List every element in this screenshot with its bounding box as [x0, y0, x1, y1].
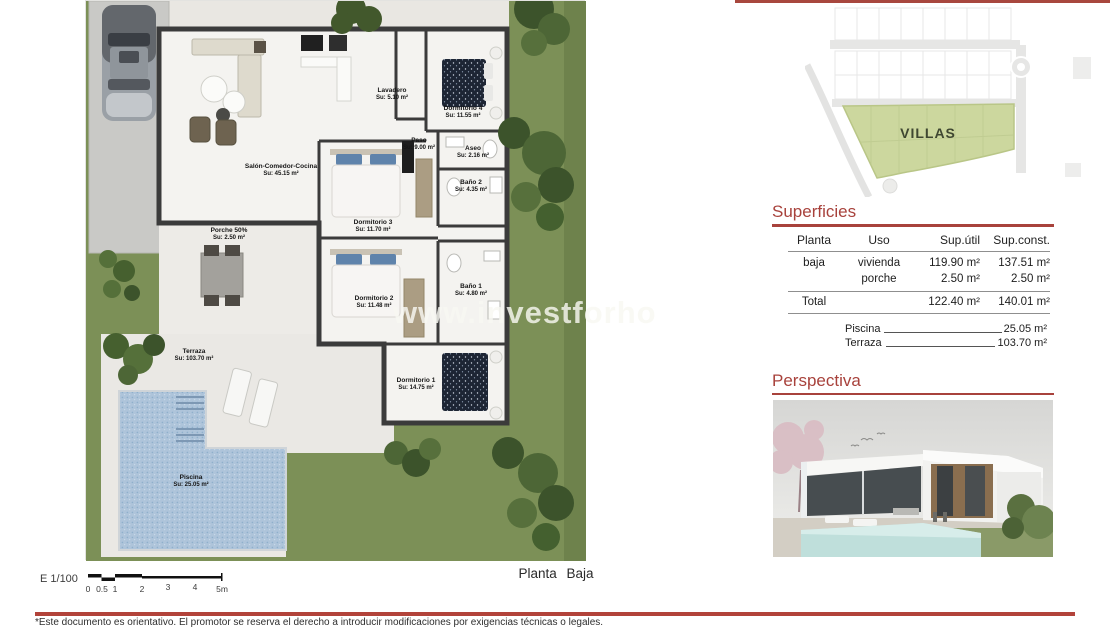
room-label-paso: Paso Su: 9.00 m²: [389, 137, 449, 153]
header-uso: Uso: [840, 233, 918, 247]
floor-plan: Salón-Comedor-Cocina Su: 45.15 m² Lavade…: [85, 0, 585, 560]
room-label-aseo: Aseo Su: 2.16 m²: [443, 145, 503, 161]
superficies-title: Superficies: [772, 202, 856, 222]
bottom-red-rule: [35, 612, 1075, 616]
footer-disclaimer: *Este documento es orientativo. El promo…: [35, 617, 603, 628]
svg-text:5m: 5m: [216, 584, 228, 594]
svg-text:3: 3: [166, 582, 171, 592]
table-header-row: Planta Uso Sup.útil Sup.const.: [788, 231, 1050, 252]
svg-text:4: 4: [193, 582, 198, 592]
perspectiva-rule: [772, 393, 1054, 395]
svg-text:1: 1: [113, 584, 118, 594]
plan-caption: Planta Baja: [500, 566, 612, 581]
header-planta: Planta: [788, 233, 840, 247]
room-label-lavadero: Lavadero Su: 5.10 m²: [362, 87, 422, 103]
header-sup-util: Sup.útil: [918, 233, 980, 247]
table-row: baja vivienda 119.90 m² 137.51 m²: [788, 252, 1050, 271]
extra-piscina: Piscina 25.05 m²: [845, 323, 1047, 335]
scale-bar: E 1/100 0 0.5 1 2 3 4 5m: [40, 568, 240, 594]
room-label-porche: Porche 50% Su: 2.50 m²: [189, 227, 269, 243]
table-total-row: Total 122.40 m² 140.01 m²: [788, 291, 1050, 314]
brochure-page: { "colors": {"accent_red": "#a8423c", "l…: [0, 0, 1110, 626]
svg-text:E 1/100: E 1/100: [40, 573, 78, 585]
room-label-dormitorio-4: Dormitorio 4 Su: 11.55 m²: [423, 105, 503, 121]
room-label-piscina: Piscina Su: 25.05 m²: [151, 474, 231, 490]
superficies-rule: [772, 224, 1054, 227]
svg-text:2: 2: [140, 584, 145, 594]
svg-text:0.5: 0.5: [96, 584, 108, 594]
villas-label: VILLAS: [900, 125, 956, 141]
superficies-table: Planta Uso Sup.útil Sup.const. baja vivi…: [788, 231, 1050, 314]
top-red-rule: [735, 0, 1110, 3]
villas-parcel: [843, 104, 1014, 178]
site-plan: VILLAS: [805, 5, 1105, 197]
room-label-dormitorio-1: Dormitorio 1 Su: 14.75 m²: [381, 377, 451, 393]
room-label-terraza: Terraza Su: 103.70 m²: [154, 348, 234, 364]
table-row: porche 2.50 m² 2.50 m²: [788, 271, 1050, 287]
svg-text:0: 0: [86, 584, 91, 594]
perspectiva-title: Perspectiva: [772, 371, 861, 391]
extra-terraza: Terraza 103.70 m²: [845, 337, 1047, 349]
car-icon: [102, 5, 156, 121]
perspective-render: [773, 400, 1053, 557]
room-label-dormitorio-3: Dormitorio 3 Su: 11.70 m²: [333, 219, 413, 235]
extras-list: Piscina 25.05 m² Terraza 103.70 m²: [845, 323, 1047, 351]
room-label-bano-2: Baño 2 Su: 4.35 m²: [441, 179, 501, 195]
room-label-salon: Salón-Comedor-Cocina Su: 45.15 m²: [231, 163, 331, 179]
watermark: www.investforho: [393, 295, 657, 331]
header-sup-const: Sup.const.: [980, 233, 1050, 247]
